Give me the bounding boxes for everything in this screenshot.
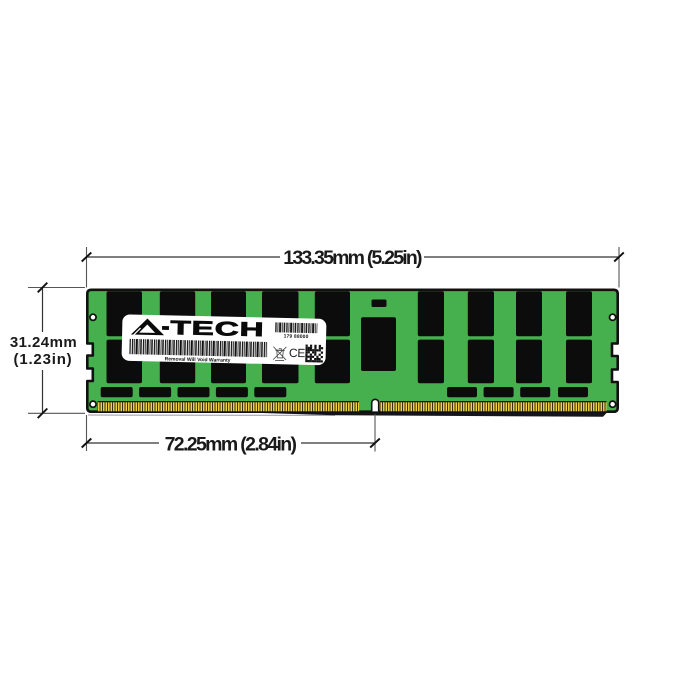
svg-text:133.35mm (5.25in): 133.35mm (5.25in): [283, 247, 422, 269]
svg-text:CE: CE: [289, 346, 306, 360]
svg-text:TECH: TECH: [170, 316, 265, 340]
svg-text:179 88000: 179 88000: [284, 334, 309, 341]
svg-text:72.25mm (2.84in): 72.25mm (2.84in): [165, 433, 297, 455]
svg-text:31.24mm: 31.24mm: [10, 334, 77, 351]
svg-text:(1.23in): (1.23in): [14, 351, 73, 368]
